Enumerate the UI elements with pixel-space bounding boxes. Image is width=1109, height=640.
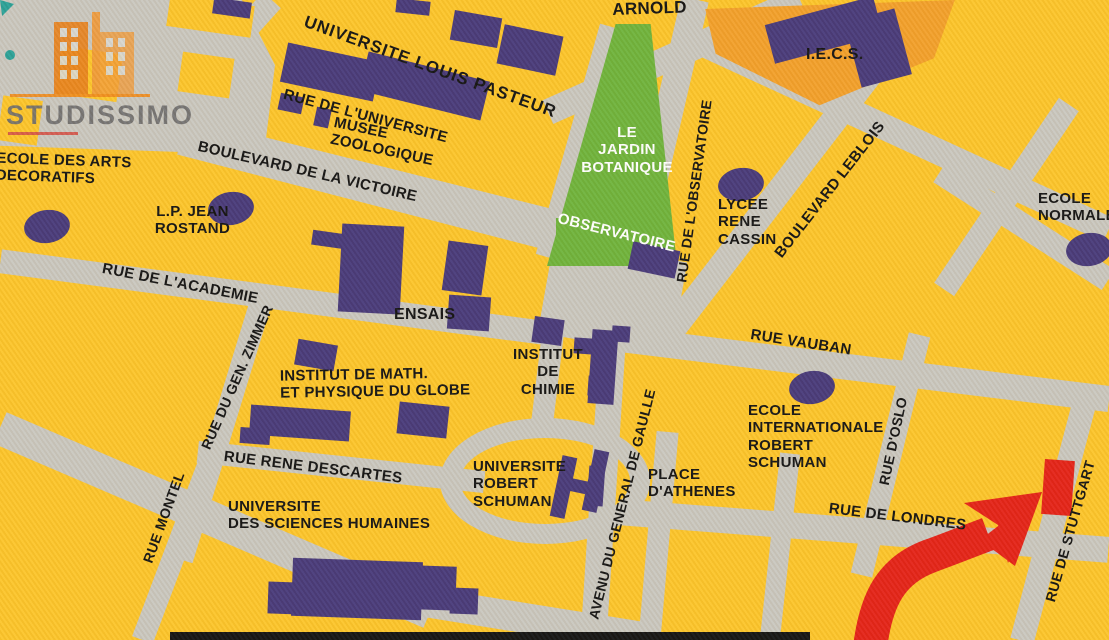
- street-label-arnold: ARNOLD: [612, 0, 687, 20]
- bottom-scan-bar: [170, 632, 810, 640]
- school-marker-dot: [22, 207, 72, 246]
- logo-brand-text: STUDISSIMO: [6, 100, 194, 131]
- place-label-ensais: ENSAIS: [394, 306, 455, 324]
- red-arrow-icon: [830, 470, 1060, 640]
- logo-rule-bottom: [8, 132, 78, 135]
- place-label-jean-rostand: L.P. JEAN ROSTAND: [135, 203, 250, 238]
- place-label-lycee-cassin: LYCEE RENE CASSIN: [718, 196, 776, 248]
- building: [396, 401, 449, 438]
- block-patch: [177, 52, 234, 99]
- street-athenes-b: [760, 452, 800, 639]
- city-map: ARNOLD UNIVERSITE LOUIS PASTEUR RUE DE L…: [0, 0, 1109, 640]
- place-label-univ-robert-schuman: UNIVERSITE ROBERT SCHUMAN: [473, 458, 566, 510]
- building: [267, 581, 300, 614]
- place-label-ecole-arts: ECOLE DES ARTS DECORATIFS: [0, 150, 132, 189]
- building: [450, 10, 502, 48]
- place-label-institut-chimie: INSTITUT DE CHIMIE: [498, 346, 598, 398]
- logo-rule-top: [10, 94, 150, 97]
- studissimo-logo: STUDISSIMO: [0, 4, 185, 144]
- place-label-univ-sciences: UNIVERSITE DES SCIENCES HUMAINES: [228, 498, 430, 533]
- buildings-icon: [40, 12, 160, 104]
- place-label-institut-math: INSTITUT DE MATH. ET PHYSIQUE DU GLOBE: [280, 364, 471, 402]
- place-label-jardin-botanique: LE JARDIN BOTANIQUE: [577, 124, 677, 176]
- building: [239, 427, 270, 445]
- building: [531, 316, 564, 346]
- building-chimie: [611, 325, 630, 342]
- place-label-iecs: I.E.C.S.: [806, 46, 864, 64]
- building-ensais: [338, 223, 405, 314]
- place-label-ecole-internationale: ECOLE INTERNATIONALE ROBERT SCHUMAN: [748, 402, 884, 471]
- place-label-ecole-normale: ECOLE NORMALE: [1038, 190, 1109, 225]
- building: [395, 0, 430, 16]
- building: [587, 465, 606, 506]
- building: [450, 588, 479, 615]
- street-rue-vauban: [618, 326, 1109, 412]
- place-label-place-athenes: PLACE D'ATHENES: [648, 466, 736, 501]
- building: [442, 240, 489, 295]
- building-sciences-humaines: [291, 558, 423, 621]
- building: [496, 24, 563, 76]
